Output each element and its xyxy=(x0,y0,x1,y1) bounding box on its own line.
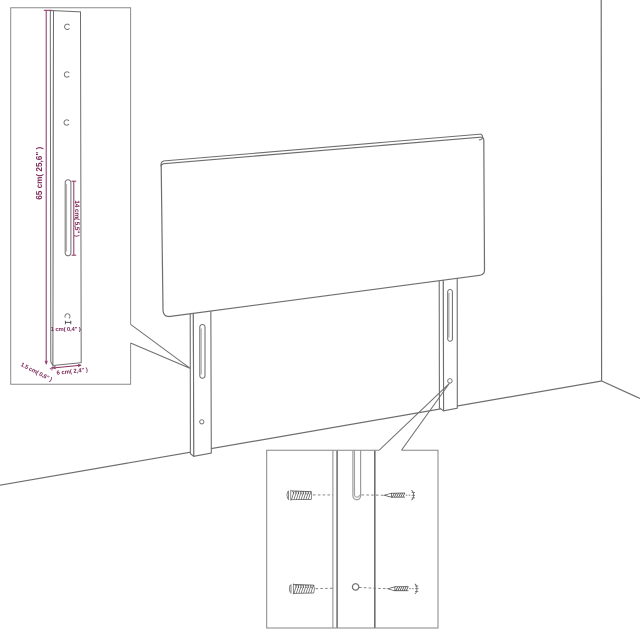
svg-text:65 cm( 25,6" ): 65 cm( 25,6" ) xyxy=(35,146,44,199)
svg-text:14 cm( 5,5" ): 14 cm( 5,5" ) xyxy=(73,200,80,236)
svg-text:1 cm( 0,4" ): 1 cm( 0,4" ) xyxy=(51,327,81,333)
